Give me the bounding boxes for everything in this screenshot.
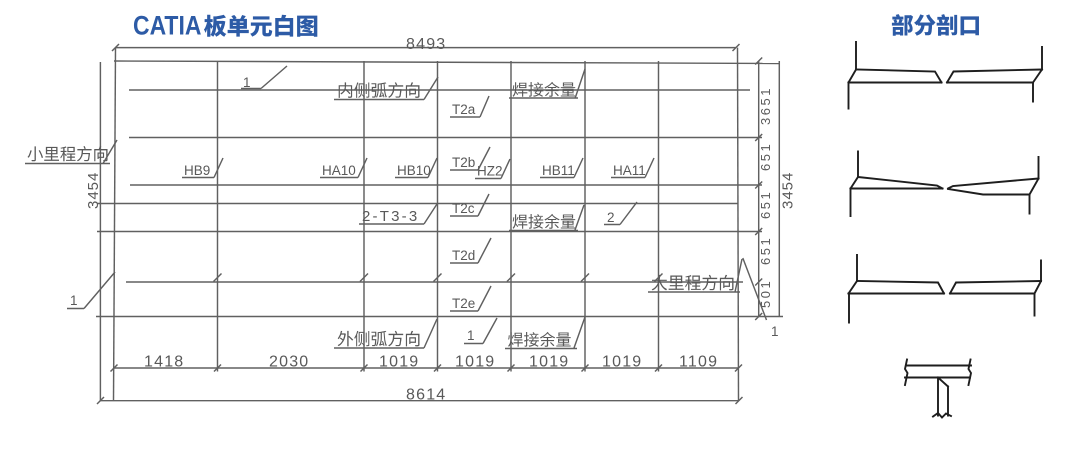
svg-text:1: 1 [467, 328, 475, 343]
svg-text:CATIA: CATIA [133, 11, 201, 41]
svg-text:HB9: HB9 [184, 163, 210, 178]
svg-text:1109: 1109 [679, 354, 718, 371]
svg-text:651: 651 [758, 190, 773, 219]
svg-text:8614: 8614 [406, 387, 446, 404]
svg-text:HZ2: HZ2 [477, 164, 503, 179]
svg-text:T2c: T2c [452, 201, 475, 216]
svg-text:3651: 3651 [758, 86, 773, 125]
svg-text:HA11: HA11 [613, 163, 646, 178]
svg-text:2: 2 [607, 210, 615, 225]
svg-text:1: 1 [243, 75, 251, 90]
svg-text:HB11: HB11 [542, 163, 575, 178]
svg-text:1: 1 [70, 293, 78, 308]
svg-text:2030: 2030 [269, 354, 309, 371]
svg-text:1019: 1019 [455, 354, 495, 371]
svg-text:1: 1 [771, 324, 779, 339]
svg-text:HA10: HA10 [322, 163, 356, 178]
svg-text:1019: 1019 [529, 354, 569, 371]
svg-text:2-T3-3: 2-T3-3 [362, 208, 419, 225]
svg-text:1019: 1019 [602, 354, 642, 371]
svg-text:T2d: T2d [452, 248, 475, 263]
svg-text:HB10: HB10 [397, 163, 431, 178]
svg-text:8493: 8493 [406, 36, 446, 53]
svg-text:1418: 1418 [144, 354, 184, 371]
svg-text:651: 651 [758, 236, 773, 265]
svg-text:T2b: T2b [452, 155, 475, 170]
svg-text:651: 651 [758, 142, 773, 171]
svg-text:3454: 3454 [85, 172, 102, 209]
svg-text:T2a: T2a [452, 102, 476, 117]
svg-text:1019: 1019 [379, 354, 419, 371]
svg-text:T2e: T2e [452, 296, 475, 311]
svg-text:3454: 3454 [780, 172, 797, 209]
